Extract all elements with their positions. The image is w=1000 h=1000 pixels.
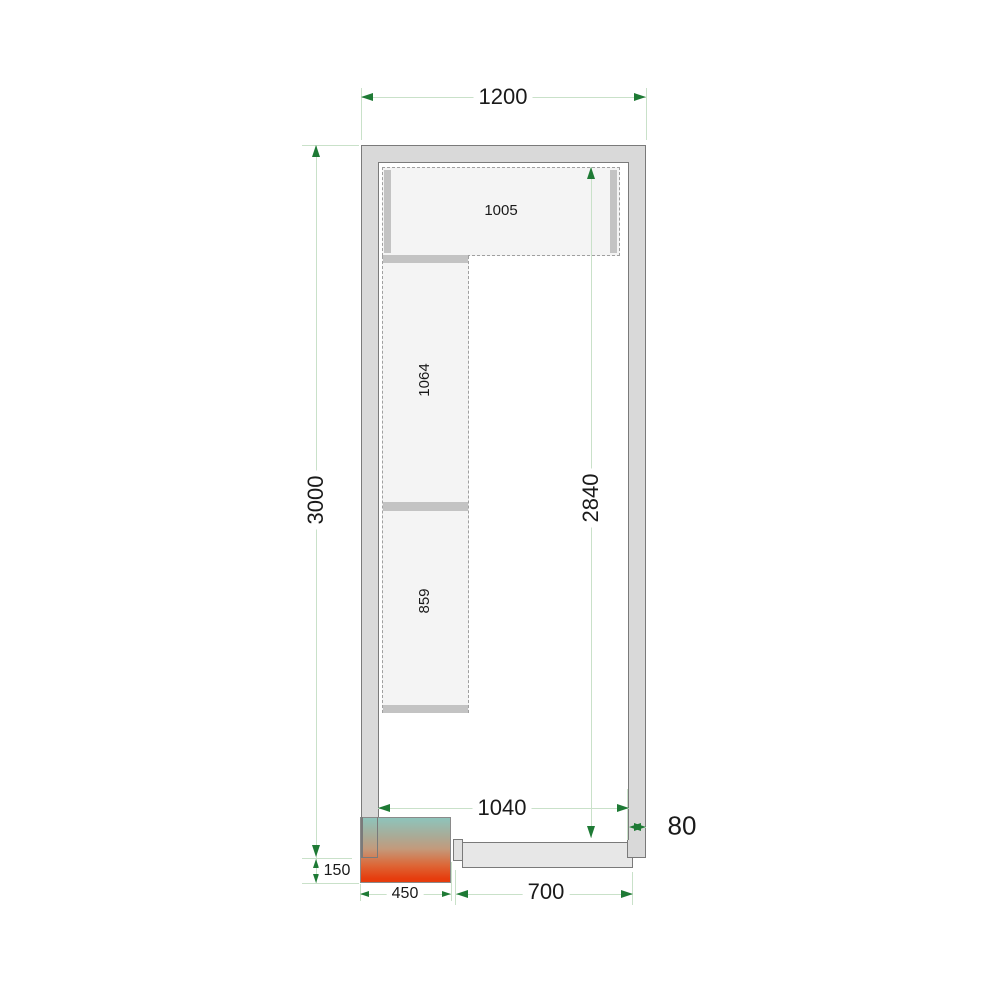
arrow-up-icon — [312, 145, 320, 157]
dim-unit-width-label: 450 — [387, 885, 424, 903]
shelf-divider-middle — [383, 502, 468, 511]
dim-outer-width-label: 1200 — [474, 85, 533, 109]
ext-line — [302, 883, 359, 884]
arrow-up-icon — [587, 167, 595, 179]
arrow-left-icon — [378, 804, 390, 812]
dim-inner-width-label: 1040 — [473, 796, 532, 820]
arrow-up-icon — [313, 859, 319, 868]
arrow-down-icon — [312, 845, 320, 857]
wall-edge-overlay — [361, 857, 378, 859]
arrow-left-icon — [360, 891, 369, 897]
plan-drawing: 1005 1064 859 1200 3000 2840 1040 80 150 — [0, 0, 1000, 1000]
ext-line — [455, 870, 456, 905]
arrow-right-icon — [442, 891, 451, 897]
cooling-unit — [360, 817, 451, 883]
wall-edge-overlay — [377, 817, 379, 858]
arrow-down-icon — [313, 874, 319, 883]
ext-line — [627, 789, 628, 840]
shelf-top-depth-label: 1005 — [484, 203, 517, 220]
dim-unit-protrusion-label: 150 — [319, 862, 356, 880]
ext-line — [302, 145, 359, 146]
arrow-right-icon — [621, 890, 633, 898]
arrow-right-icon — [617, 804, 629, 812]
ext-line — [646, 88, 647, 140]
shelf-divider-bottom — [383, 705, 468, 713]
dim-outer-height-label: 3000 — [304, 471, 328, 530]
arrow-right-icon — [634, 93, 646, 101]
shelf-support-right — [610, 170, 617, 253]
shelf-column-left — [382, 256, 469, 713]
ext-line — [632, 872, 633, 905]
wall-edge-overlay — [361, 817, 363, 858]
shelf-support-left — [384, 170, 391, 253]
arrow-left-icon — [456, 890, 468, 898]
door-leaf — [462, 842, 633, 868]
wall-corner-bottom-right — [627, 840, 646, 858]
door-jamb — [453, 839, 463, 861]
arrow-left-icon — [361, 93, 373, 101]
dim-wall-thickness-label: 80 — [668, 812, 697, 841]
dim-door-width-label: 700 — [523, 880, 570, 904]
shelf-divider-top — [383, 255, 468, 263]
ext-line — [302, 858, 352, 859]
arrow-down-icon — [587, 826, 595, 838]
arrow-right-icon — [634, 823, 646, 831]
dim-inner-height-label: 2840 — [579, 469, 603, 528]
shelf-upper-length-label: 1064 — [417, 363, 434, 396]
shelf-lower-length-label: 859 — [417, 588, 434, 613]
